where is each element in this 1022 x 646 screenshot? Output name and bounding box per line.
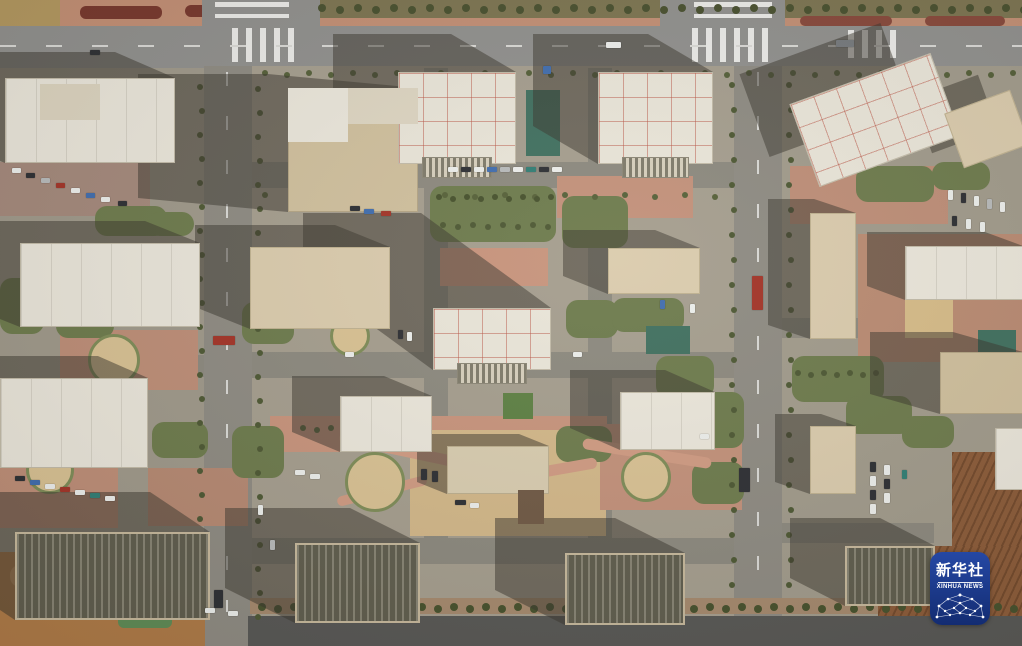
tree — [257, 350, 263, 356]
car — [364, 209, 374, 214]
building — [598, 72, 713, 164]
car — [660, 300, 665, 309]
tree — [336, 6, 344, 14]
car — [700, 434, 709, 439]
tree — [738, 603, 746, 611]
car — [213, 336, 235, 345]
car — [12, 168, 21, 173]
tree — [306, 70, 312, 76]
tree — [788, 407, 794, 413]
roof-section — [40, 84, 100, 120]
tree — [464, 194, 470, 200]
tree — [712, 194, 718, 200]
car — [884, 493, 890, 503]
tree — [506, 196, 512, 202]
car — [101, 197, 110, 202]
tree — [1002, 4, 1010, 12]
car — [15, 476, 25, 481]
tree — [552, 6, 560, 14]
car — [398, 330, 403, 339]
building — [295, 543, 420, 623]
tree — [485, 224, 491, 230]
car — [30, 480, 40, 485]
garden — [566, 300, 618, 338]
building-south-facade — [457, 363, 527, 384]
tree — [436, 194, 442, 200]
landscape-circle — [345, 452, 405, 512]
tree — [795, 370, 801, 376]
planting-bed — [80, 6, 162, 19]
tree — [729, 182, 735, 188]
tree — [548, 194, 554, 200]
watermark-divider — [938, 582, 982, 583]
tree — [622, 192, 628, 198]
xinhua-news-watermark: 新华社 XINHUA NEWS — [930, 552, 990, 625]
tree — [912, 6, 920, 14]
car — [543, 66, 551, 74]
tree — [729, 82, 735, 88]
tree — [731, 507, 737, 513]
tree — [729, 482, 735, 488]
tree — [731, 407, 737, 413]
tree — [197, 372, 203, 378]
car — [310, 474, 320, 479]
car — [295, 470, 305, 475]
roof-section — [348, 88, 418, 124]
tree — [442, 192, 448, 198]
car — [500, 167, 510, 172]
tree — [492, 194, 498, 200]
car — [41, 178, 50, 183]
tree — [729, 282, 735, 288]
tree — [786, 332, 792, 338]
building — [995, 428, 1022, 490]
tree — [834, 603, 842, 611]
tree — [729, 532, 735, 538]
building — [608, 248, 700, 294]
tree — [690, 605, 698, 613]
tree — [682, 192, 688, 198]
car — [961, 193, 966, 203]
car — [870, 462, 876, 472]
tree — [788, 507, 794, 513]
tree — [984, 6, 992, 14]
tree — [515, 224, 521, 230]
car — [552, 167, 562, 172]
tree — [642, 4, 650, 12]
lawn — [503, 393, 533, 419]
tree — [660, 6, 668, 14]
watermark-network-globe-icon — [933, 593, 987, 620]
tree — [804, 6, 812, 14]
tree — [390, 4, 398, 12]
car — [90, 493, 100, 498]
tree — [966, 70, 972, 76]
car — [752, 276, 763, 310]
tree — [731, 357, 737, 363]
tree — [466, 605, 474, 613]
car — [432, 471, 438, 482]
tree — [834, 372, 840, 378]
tree — [199, 444, 205, 450]
car — [836, 40, 854, 47]
tree — [882, 605, 890, 613]
car — [350, 206, 360, 211]
car — [513, 167, 523, 172]
building — [433, 308, 551, 370]
tree — [731, 157, 737, 163]
building — [940, 352, 1022, 414]
tree — [498, 4, 506, 12]
tree — [1010, 605, 1018, 613]
car — [205, 608, 215, 613]
car — [870, 476, 876, 486]
garden — [902, 416, 954, 448]
tree — [729, 582, 735, 588]
tree — [731, 107, 737, 113]
tree — [840, 6, 848, 14]
tree — [914, 605, 922, 613]
tree — [786, 582, 792, 588]
garden — [692, 462, 744, 504]
tree — [255, 422, 261, 428]
tree — [408, 6, 416, 14]
car — [448, 167, 458, 172]
tree — [729, 332, 735, 338]
building — [905, 246, 1022, 300]
tree — [714, 4, 722, 12]
car — [884, 479, 890, 489]
car — [60, 487, 70, 492]
building — [15, 532, 210, 620]
car — [526, 167, 536, 172]
tree — [770, 603, 778, 611]
tree — [606, 4, 614, 12]
car — [987, 199, 992, 209]
tree — [948, 6, 956, 14]
tree — [534, 4, 542, 12]
tree — [732, 6, 740, 14]
car — [105, 496, 115, 501]
building — [250, 247, 390, 329]
tree — [750, 4, 758, 12]
car — [952, 216, 957, 226]
tree — [786, 605, 794, 613]
tree — [624, 6, 632, 14]
car — [270, 540, 275, 550]
tree — [786, 182, 792, 188]
building — [447, 446, 549, 494]
tree — [470, 222, 476, 228]
car — [421, 469, 427, 480]
tree — [318, 4, 326, 12]
car — [228, 611, 238, 616]
tree — [450, 196, 456, 202]
aerial-photo-residential-complex: 新华社 XINHUA NEWS — [0, 0, 1022, 646]
tree — [199, 204, 205, 210]
building — [810, 426, 856, 494]
tree — [994, 603, 1002, 611]
tree — [722, 605, 730, 613]
tree — [788, 157, 794, 163]
tree — [570, 4, 578, 12]
car — [407, 332, 412, 341]
crosswalk — [215, 2, 289, 18]
car — [26, 173, 35, 178]
landscape-circle — [621, 452, 671, 502]
tree — [802, 603, 810, 611]
car — [974, 196, 979, 206]
building — [845, 546, 935, 606]
tree — [257, 494, 263, 500]
tree — [876, 6, 884, 14]
tree — [526, 70, 532, 76]
tree — [729, 432, 735, 438]
tree — [729, 232, 735, 238]
car — [980, 222, 985, 232]
tree — [731, 557, 737, 563]
tree — [455, 224, 461, 230]
car — [461, 167, 471, 172]
car — [258, 505, 263, 515]
garden — [152, 422, 208, 458]
tree — [696, 6, 704, 14]
car — [1000, 202, 1005, 212]
tree — [786, 382, 792, 388]
scrub-dirt — [0, 0, 62, 26]
car — [573, 352, 582, 357]
tree — [724, 72, 730, 78]
car — [487, 167, 497, 172]
tree — [944, 72, 950, 78]
building — [0, 378, 148, 468]
car — [45, 484, 55, 489]
tree — [894, 4, 902, 12]
tree — [197, 516, 203, 522]
tree — [788, 357, 794, 363]
car — [474, 167, 484, 172]
tree — [858, 4, 866, 12]
tree — [257, 446, 263, 452]
tree — [768, 6, 776, 14]
tree — [480, 6, 488, 14]
tree — [860, 372, 866, 378]
building — [810, 213, 856, 339]
tree — [482, 603, 490, 611]
tree — [462, 4, 470, 12]
car — [381, 211, 391, 216]
car — [870, 490, 876, 500]
lane-markings — [757, 72, 759, 590]
tree — [821, 370, 827, 376]
tree — [988, 72, 994, 78]
tree — [786, 4, 794, 12]
tree — [255, 374, 261, 380]
tree — [754, 605, 762, 613]
garden — [856, 166, 934, 202]
car — [539, 167, 549, 172]
car — [86, 193, 95, 198]
tree — [426, 4, 434, 12]
tree — [530, 222, 536, 228]
tree — [818, 605, 826, 613]
watermark-chinese-text: 新华社 — [930, 559, 990, 580]
car — [56, 183, 65, 188]
tree — [731, 207, 737, 213]
tree — [850, 605, 858, 613]
tree — [255, 470, 261, 476]
sports-court — [646, 326, 690, 354]
tree — [514, 603, 522, 611]
car — [902, 470, 907, 479]
tree — [255, 614, 261, 620]
tree — [498, 605, 506, 613]
tree — [257, 398, 263, 404]
tree — [500, 222, 506, 228]
car — [948, 190, 953, 200]
tree — [434, 605, 442, 613]
tree — [450, 603, 458, 611]
tree — [847, 370, 853, 376]
tree — [930, 4, 938, 12]
tree — [478, 196, 484, 202]
tree — [678, 4, 686, 12]
car — [118, 201, 127, 206]
tree — [966, 4, 974, 12]
car — [884, 465, 890, 475]
tree — [372, 6, 380, 14]
tree — [729, 132, 735, 138]
tree — [706, 603, 714, 611]
roof-section — [288, 88, 348, 142]
building-south-facade — [622, 157, 690, 178]
tree — [562, 192, 568, 198]
tree — [440, 222, 446, 228]
car — [75, 490, 85, 495]
tree — [520, 194, 526, 200]
watermark-english-text: XINHUA NEWS — [930, 584, 990, 590]
car — [90, 50, 100, 55]
car — [606, 42, 621, 48]
tree — [199, 492, 205, 498]
tree — [731, 457, 737, 463]
car — [690, 304, 695, 313]
building — [565, 553, 685, 625]
planting-bed — [925, 16, 1005, 26]
tree — [822, 4, 830, 12]
tree — [545, 224, 551, 230]
tree — [592, 194, 598, 200]
tree — [199, 348, 205, 354]
car — [870, 504, 876, 514]
building — [620, 392, 715, 450]
car — [455, 500, 466, 505]
car — [966, 219, 971, 229]
car — [739, 468, 750, 492]
building — [20, 243, 200, 327]
tree — [516, 6, 524, 14]
tree — [197, 420, 203, 426]
pyramid-skylight — [518, 490, 544, 524]
car — [345, 352, 354, 357]
tree — [652, 194, 658, 200]
car — [71, 188, 80, 193]
tree — [444, 6, 452, 14]
tree — [731, 257, 737, 263]
tree — [731, 307, 737, 313]
tree — [197, 468, 203, 474]
tree — [354, 4, 362, 12]
tree — [199, 396, 205, 402]
garden — [932, 162, 990, 190]
tree — [1010, 70, 1016, 76]
tree — [729, 382, 735, 388]
car — [214, 590, 223, 608]
car — [470, 503, 479, 508]
tree — [808, 372, 814, 378]
tree — [588, 6, 596, 14]
tree — [534, 196, 540, 202]
building — [340, 396, 432, 452]
